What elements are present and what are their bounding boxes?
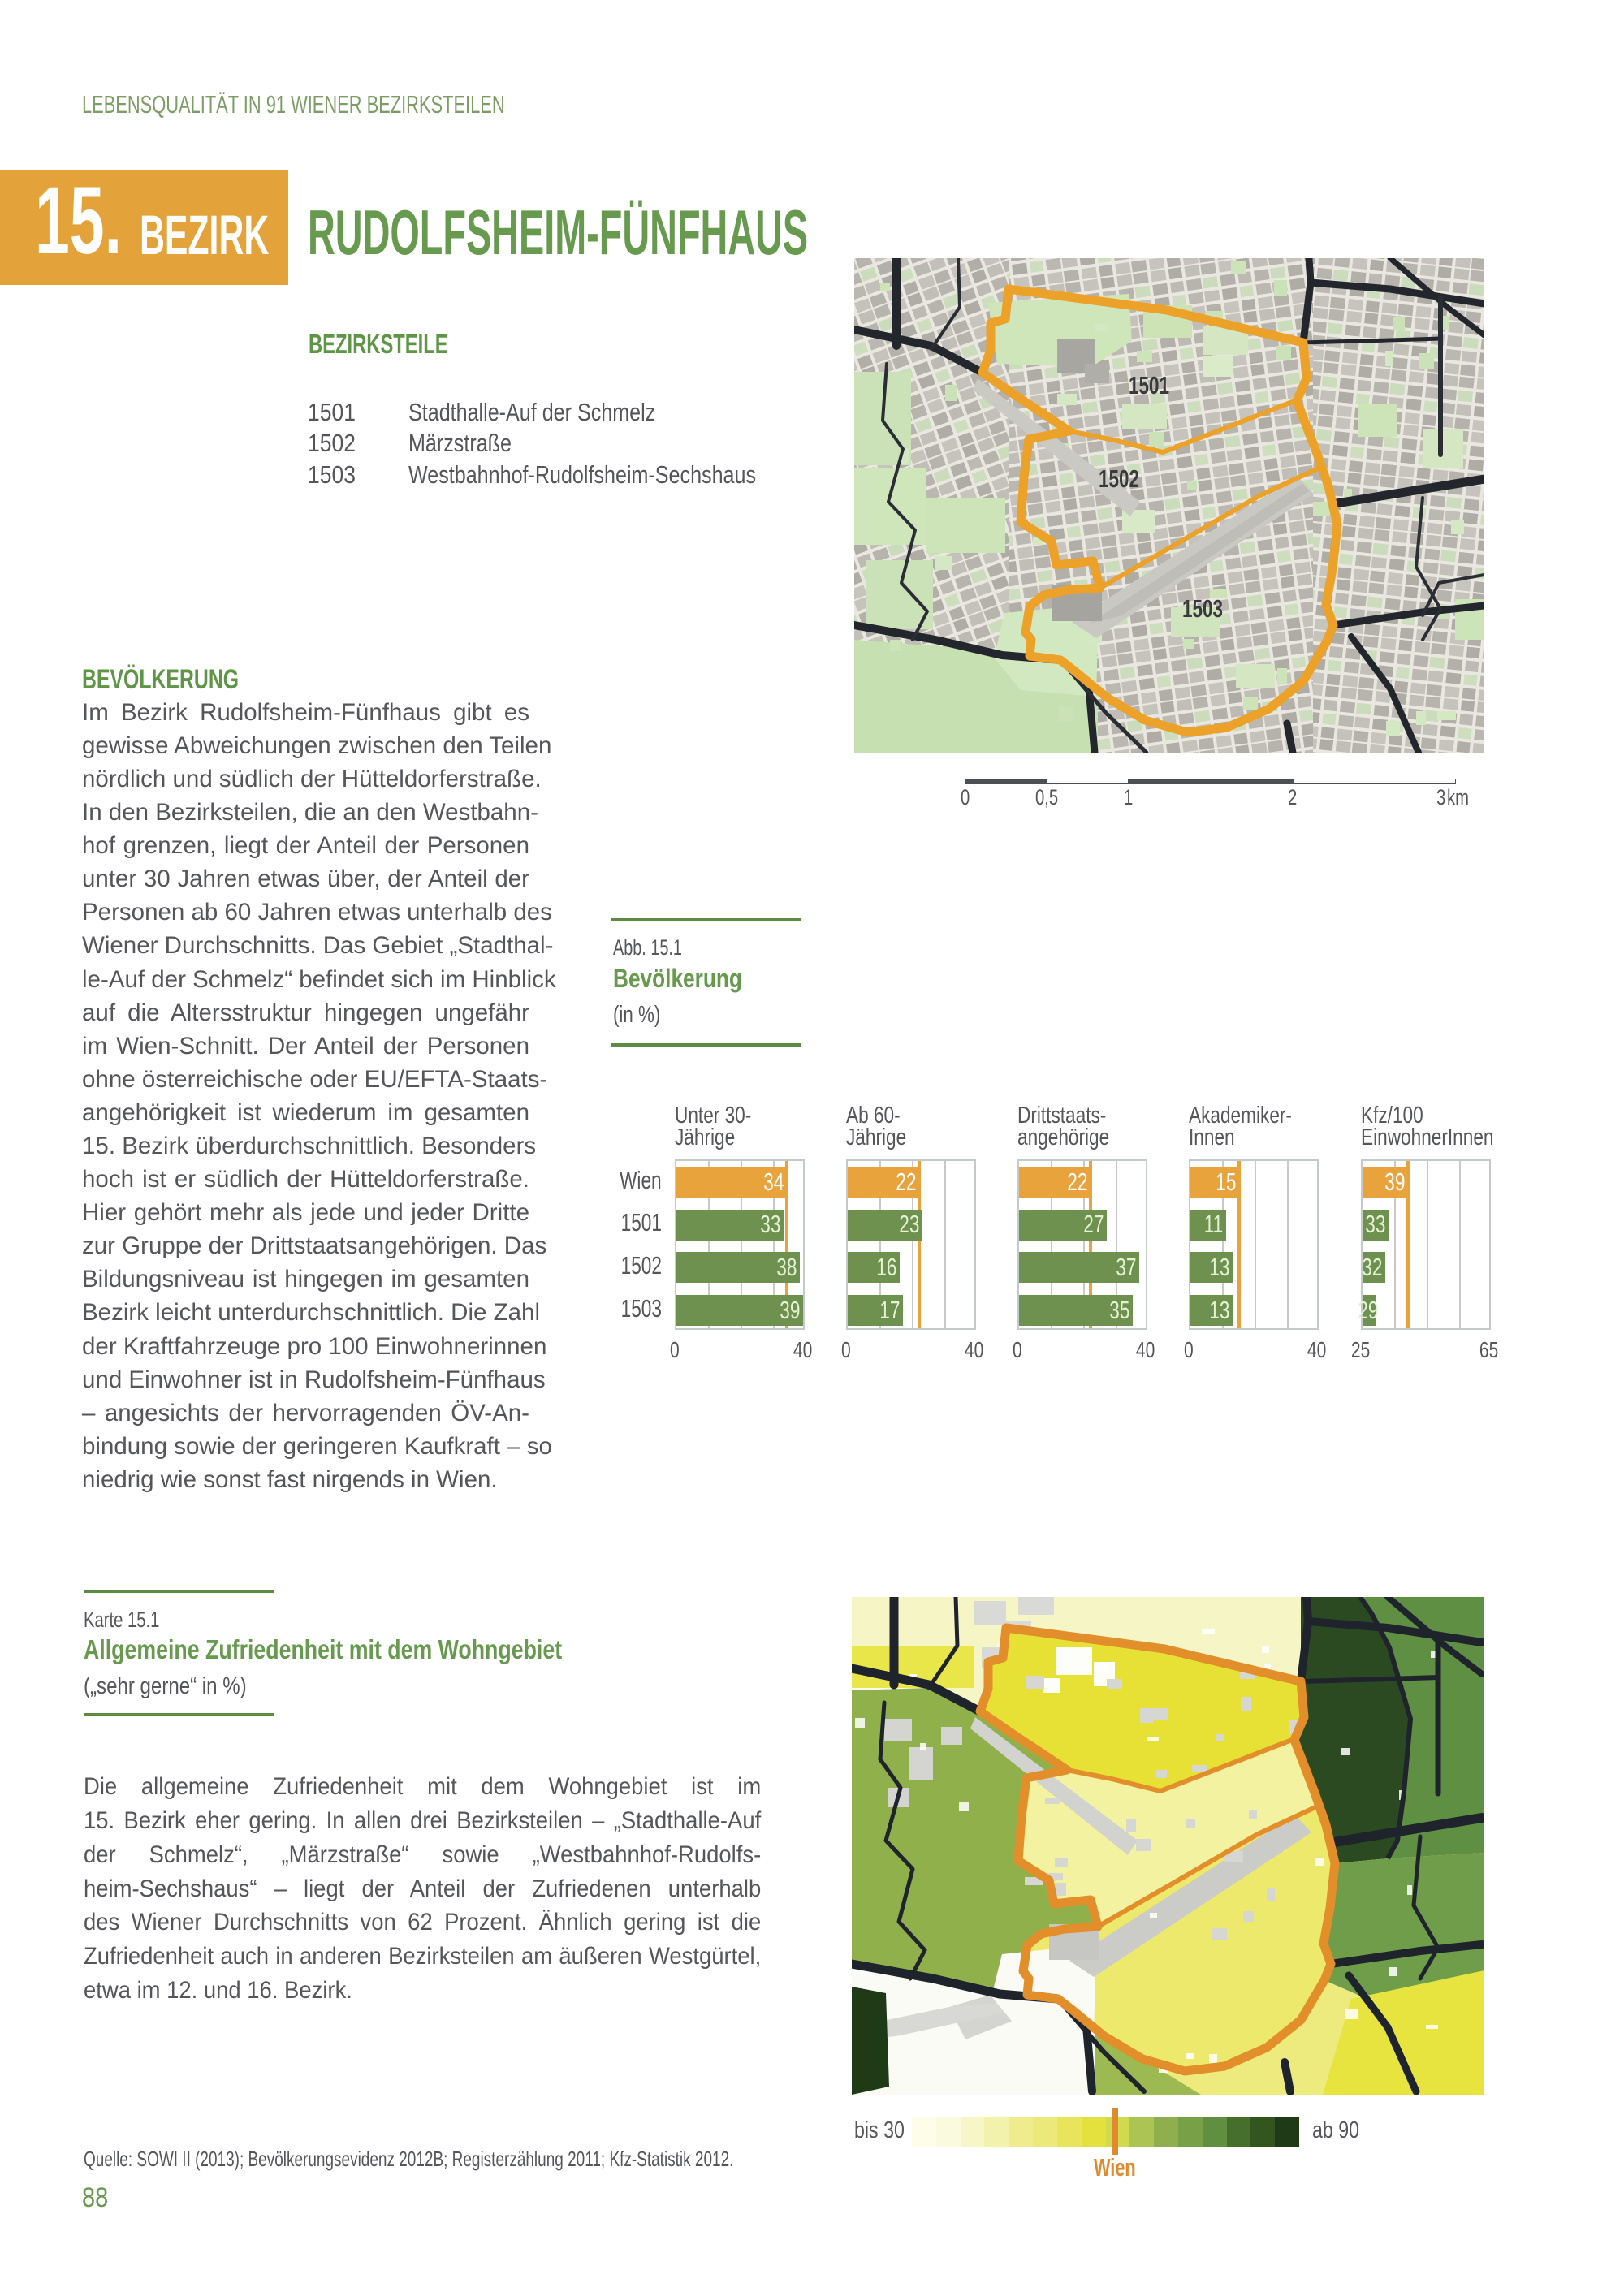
svg-text:1502: 1502 xyxy=(1099,464,1139,493)
svg-text:1503: 1503 xyxy=(1182,594,1223,623)
svg-text:1501: 1501 xyxy=(1129,371,1169,399)
